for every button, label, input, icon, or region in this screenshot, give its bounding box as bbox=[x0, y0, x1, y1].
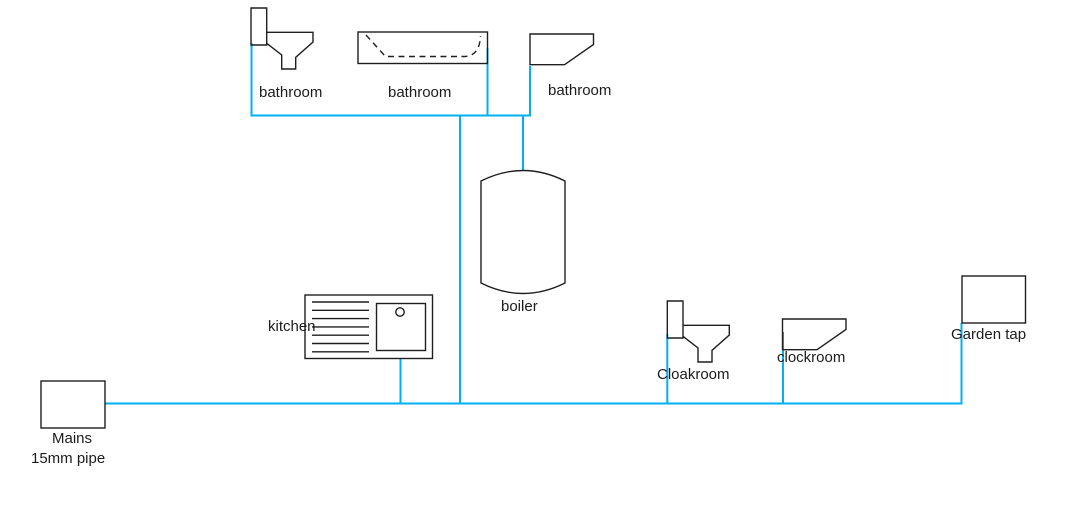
diagram-canvas: bathroom bathroom bathroom boiler kitche… bbox=[0, 0, 1079, 518]
mains-label: Mains bbox=[52, 431, 92, 447]
garden-tap-box bbox=[962, 276, 1026, 323]
fixtures-group bbox=[41, 8, 1026, 428]
pipe-bathroom-manifold bbox=[252, 43, 532, 116]
garden-tap-label: Garden tap bbox=[951, 327, 1026, 343]
bathroom-toilet-label: bathroom bbox=[259, 85, 322, 101]
mains-box bbox=[41, 381, 105, 428]
bathroom-sink-label: bathroom bbox=[548, 83, 611, 99]
mains-pipe-size-label: 15mm pipe bbox=[31, 451, 105, 467]
boiler-icon bbox=[481, 171, 565, 294]
diagram-svg bbox=[0, 0, 1079, 518]
kitchen-label: kitchen bbox=[268, 319, 316, 335]
clockroom-sink-icon bbox=[783, 319, 847, 350]
boiler-label: boiler bbox=[501, 299, 538, 315]
bathroom-sink-icon bbox=[530, 34, 594, 65]
cloakroom-label: Cloakroom bbox=[657, 367, 730, 383]
bathtub-icon bbox=[358, 32, 488, 64]
kitchen-sink-icon bbox=[305, 295, 433, 359]
clockroom-label: clockroom bbox=[777, 350, 845, 366]
bathroom-bathtub-label: bathroom bbox=[388, 85, 451, 101]
bathroom-toilet-icon bbox=[251, 8, 313, 69]
cloakroom-toilet-icon bbox=[667, 301, 729, 362]
